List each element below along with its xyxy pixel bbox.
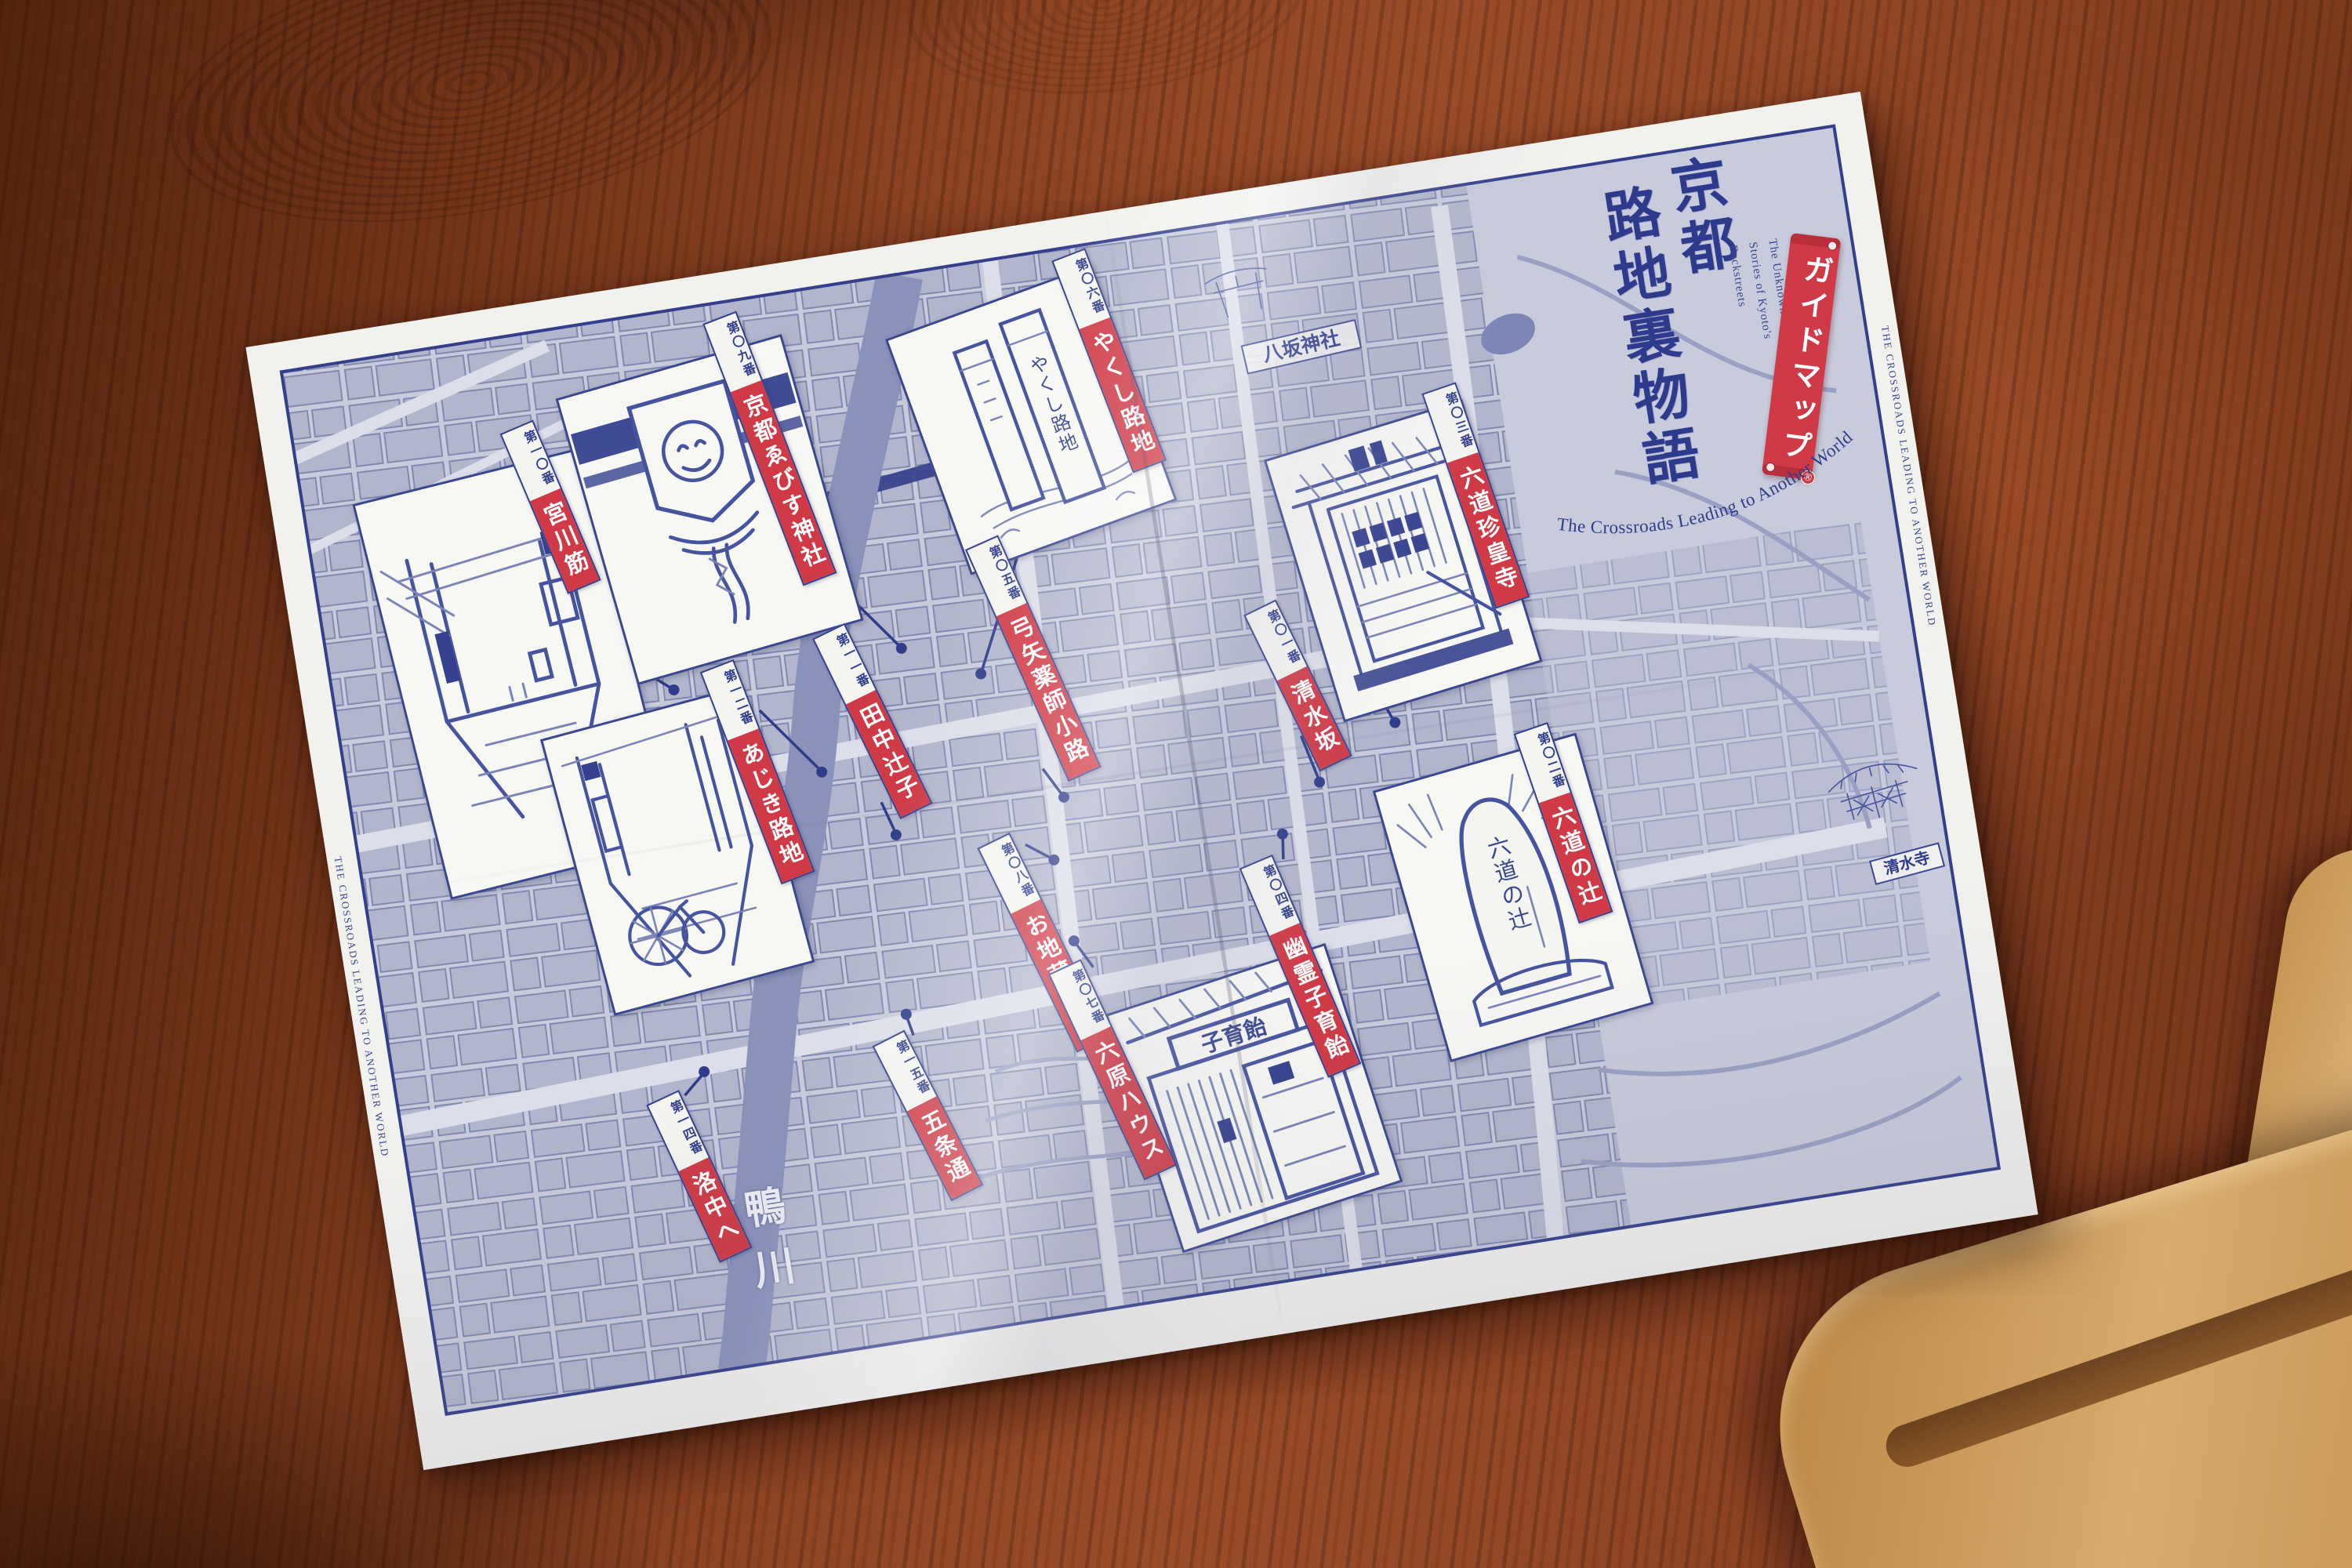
photo-scene: THE CROSSROADS LEADING TO ANOTHER WORLD … bbox=[0, 0, 2352, 1568]
chair-slot bbox=[1880, 1239, 2352, 1472]
banner-pin-icon bbox=[1828, 241, 1838, 251]
